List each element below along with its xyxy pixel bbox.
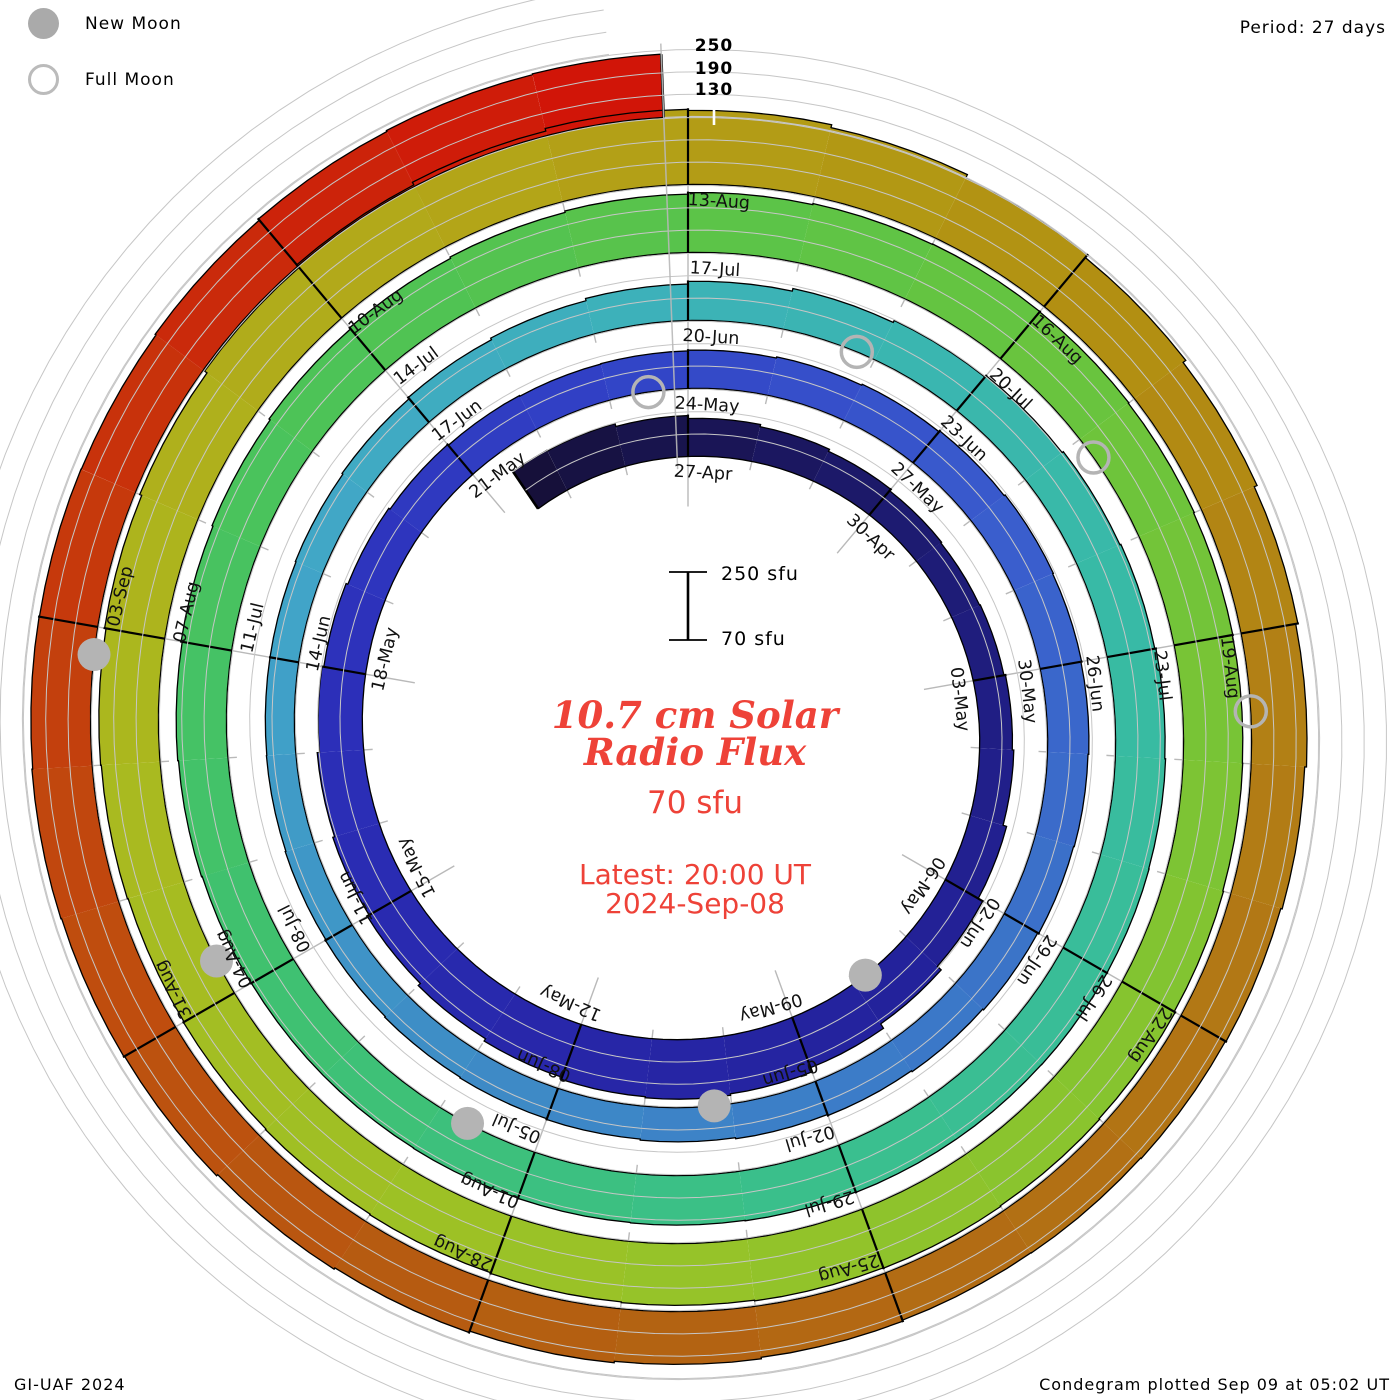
chart-title-line1: 10.7 cm Solar <box>465 697 925 734</box>
new-moon-icon <box>28 8 59 39</box>
chart-title: 10.7 cm Solar Radio Flux 70 sfu <box>465 697 925 821</box>
svg-text:30-May: 30-May <box>1013 658 1040 725</box>
plotted-timestamp: Condegram plotted Sep 09 at 05:02 UT <box>1039 1375 1390 1394</box>
latest-block: Latest: 20:00 UT 2024-Sep-08 <box>465 860 925 919</box>
radial-scale-190: 190 <box>695 59 734 79</box>
full-moon-label: Full Moon <box>85 70 175 90</box>
condegram-page: 27-Apr30-Apr03-May06-May09-May12-May15-M… <box>0 0 1400 1400</box>
radial-scale-250: 250 <box>695 36 734 56</box>
credit-label: GI-UAF 2024 <box>14 1375 126 1394</box>
legend-new-moon: New Moon <box>28 8 182 39</box>
scalebar-bottom-label: 70 sfu <box>721 628 786 650</box>
latest-date: 2024-Sep-08 <box>465 889 925 918</box>
latest-time: Latest: 20:00 UT <box>465 860 925 889</box>
scalebar-top-label: 250 sfu <box>721 563 799 585</box>
svg-text:11-Jul: 11-Jul <box>237 601 268 655</box>
period-label: Period: 27 days <box>1240 18 1386 38</box>
svg-text:24-May: 24-May <box>674 394 740 418</box>
radial-scale-130: 130 <box>695 80 734 100</box>
svg-text:17-Jul: 17-Jul <box>689 258 741 281</box>
svg-text:20-Jun: 20-Jun <box>682 326 740 349</box>
full-moon-icon <box>28 64 59 95</box>
svg-text:27-Apr: 27-Apr <box>673 462 733 485</box>
svg-text:13-Aug: 13-Aug <box>687 190 750 214</box>
legend-full-moon: Full Moon <box>28 64 175 95</box>
svg-text:03-May: 03-May <box>946 666 973 733</box>
new-moon-label: New Moon <box>85 14 182 34</box>
chart-title-line2: Radio Flux <box>465 734 925 771</box>
baseline-flux-label: 70 sfu <box>465 785 925 821</box>
